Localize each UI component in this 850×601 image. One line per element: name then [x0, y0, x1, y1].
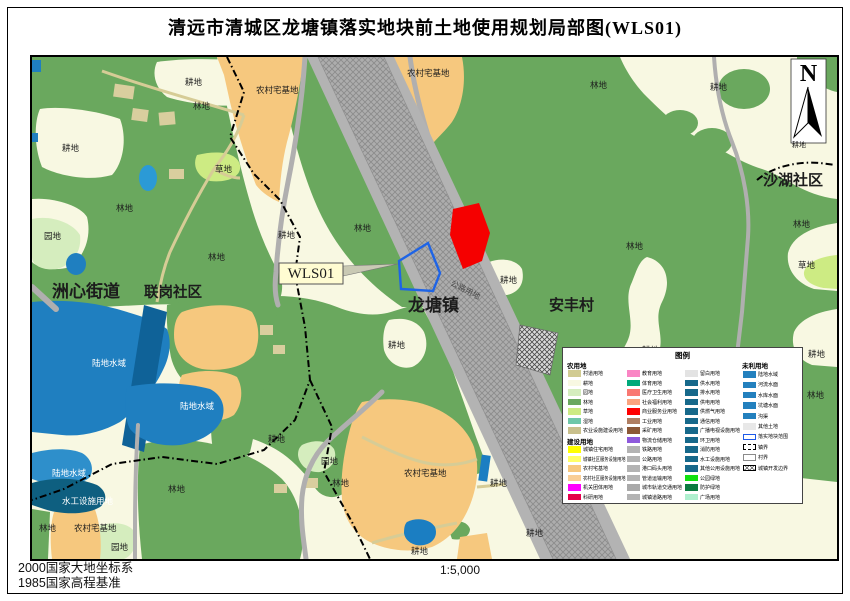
legend-item-label: 采矿用地: [642, 427, 662, 434]
north-arrow: N: [791, 59, 826, 143]
legend-item-label: 环卫用地: [700, 437, 720, 444]
legend-swatch: [743, 454, 756, 461]
legend-item-label: 城镇道路用地: [642, 494, 672, 501]
legend-swatch: [627, 427, 640, 434]
legend-item-label: 村道用地: [583, 370, 603, 377]
legend-section-header: 未利用地: [742, 360, 768, 370]
legend-item: 城镇开发边界: [743, 464, 788, 472]
legend-item: 公园绿地: [685, 474, 720, 482]
legend-swatch: [685, 418, 698, 425]
legend-swatch: [627, 446, 640, 453]
map-label: 农村宅基地: [256, 85, 299, 95]
legend-swatch: [568, 370, 581, 377]
map-label: 林地: [193, 101, 211, 111]
legend-item-label: 商业服务业用地: [642, 408, 677, 415]
legend-swatch: [743, 413, 756, 420]
legend-item-label: 镇界: [758, 444, 768, 451]
map-label: 林地: [332, 478, 350, 488]
legend-item: 农村社区服务设施用地: [568, 474, 633, 482]
map-label: 农村宅基地: [74, 523, 117, 533]
legend-item: 交通场站用地: [627, 503, 672, 505]
legend-swatch: [743, 371, 756, 378]
legend-item: 村界: [743, 454, 768, 462]
legend-item-label: 防护绿地: [700, 484, 720, 491]
legend-swatch: [568, 427, 581, 434]
legend-swatch: [568, 475, 581, 482]
legend-item: 村道用地: [568, 370, 603, 378]
legend-item-label: 通信用地: [700, 418, 720, 425]
legend-swatch: [685, 475, 698, 482]
legend-item-label: 农村宅基地: [583, 465, 608, 472]
map-label: 林地: [626, 241, 644, 251]
legend-item-label: 公园绿地: [700, 475, 720, 482]
legend-item: 落实地块范围: [743, 433, 788, 441]
legend-item: 镇界: [743, 443, 768, 451]
legend-item: 广播电视设施用地: [685, 427, 740, 435]
legend-section-header: 建设用地: [567, 436, 593, 446]
legend-item: 农村宅基地: [568, 465, 608, 473]
map-label: 林地: [116, 203, 134, 213]
map-label: 园地: [321, 456, 339, 466]
legend-item-label: 落实地块范围: [758, 433, 788, 440]
legend-swatch: [685, 494, 698, 501]
legend-item-label: 城市轨道交通用地: [642, 484, 682, 491]
legend-item-label: 坑塘水面: [758, 402, 778, 409]
legend-swatch: [627, 370, 640, 377]
legend-item-label: 消防用地: [700, 446, 720, 453]
map-sheet: 清远市清城区龙塘镇落实地块前土地使用规划局部图(WLS01): [0, 0, 850, 601]
legend-item: 农业设施建设用地: [568, 427, 623, 435]
legend-swatch: [627, 408, 640, 415]
legend-item-label: 城镇开发边界: [758, 465, 788, 472]
legend-item: 商业服务业用地: [627, 408, 677, 416]
map-label: 耕地: [710, 82, 728, 92]
legend-item-label: 排水用地: [700, 389, 720, 396]
legend-swatch: [685, 399, 698, 406]
legend-item: 铁路用地: [627, 446, 662, 454]
legend-item-label: 耕地: [583, 380, 593, 387]
legend-swatch: [568, 465, 581, 472]
legend-swatch: [568, 389, 581, 396]
map-label: 安丰村: [549, 296, 594, 314]
legend-box: 图例 农用地村道用地耕地园地林地草地湿地农业设施建设用地建设用地城镇住宅用地城镇…: [562, 347, 803, 504]
legend-item: 教育用地: [627, 370, 662, 378]
map-label: 林地: [793, 219, 811, 229]
legend-swatch: [685, 446, 698, 453]
map-label: 耕地: [526, 528, 544, 538]
legend-item-label: 湿地: [583, 418, 593, 425]
map-label: 林地: [208, 252, 226, 262]
legend-item: 园地: [568, 389, 593, 397]
legend-item: 物流仓储用地: [627, 436, 672, 444]
legend-swatch: [568, 494, 581, 501]
map-label: 陆地水域: [180, 401, 215, 411]
legend-item-label: 其他土地: [758, 423, 778, 430]
legend-item-label: 城镇住宅用地: [583, 446, 613, 453]
map-label: 耕地: [278, 230, 296, 240]
legend-swatch: [627, 380, 640, 387]
map-label: 草地: [798, 260, 816, 270]
legend-item-label: 城镇社区服务设施用地: [583, 456, 626, 463]
map-label: 耕地: [411, 546, 429, 556]
legend-item-label: 文化用地: [583, 503, 603, 504]
legend-item: 消防用地: [685, 446, 720, 454]
legend-item: 城镇社区服务设施用地: [568, 455, 633, 463]
datum-text: 2000国家大地坐标系 1985国家高程基准: [18, 561, 133, 591]
legend-swatch: [685, 503, 698, 504]
legend-swatch: [568, 446, 581, 453]
legend-section-header: 农用地: [567, 360, 587, 370]
scale-label: 1:5,000: [400, 563, 520, 577]
map-label: 林地: [590, 80, 608, 90]
legend-item-label: 沟渠: [758, 413, 768, 420]
map-label: 耕地: [268, 434, 286, 444]
legend-swatch: [685, 465, 698, 472]
legend-swatch: [568, 399, 581, 406]
map-label: 沙湖社区: [763, 171, 823, 189]
legend-item: 供电用地: [685, 398, 720, 406]
legend-item: 公路用地: [627, 455, 662, 463]
map-label: 耕地: [62, 143, 80, 153]
legend-item: 排水用地: [685, 389, 720, 397]
legend-item-label: 供电用地: [700, 399, 720, 406]
legend-item: 环卫用地: [685, 436, 720, 444]
map-label: 洲心街道: [52, 281, 120, 301]
legend-item: 广场用地: [685, 493, 720, 501]
legend-item: 留白用地: [685, 370, 720, 378]
legend-item: 社会福利用地: [627, 398, 672, 406]
legend-item-label: 公路用地: [642, 456, 662, 463]
legend-item-label: 铁路用地: [642, 446, 662, 453]
map-label: 园地: [44, 231, 62, 241]
legend-item: 机关团体用地: [568, 484, 613, 492]
legend-item-label: 交通场站用地: [642, 503, 672, 504]
legend-item-label: 供水用地: [700, 380, 720, 387]
legend-item-label: 教育用地: [642, 370, 662, 377]
legend-swatch: [685, 437, 698, 444]
map-label: 农村宅基地: [404, 468, 447, 478]
legend-item: 湿地: [568, 417, 593, 425]
legend-item-label: 水库水面: [758, 392, 778, 399]
legend-item-label: 管道运输用地: [642, 475, 672, 482]
legend-item-label: 供燃气用地: [700, 408, 725, 415]
legend-item: 供燃气用地: [685, 408, 725, 416]
legend-item-label: 社会福利用地: [642, 399, 672, 406]
legend-swatch: [743, 423, 756, 430]
datum-line2: 1985国家高程基准: [18, 576, 133, 591]
legend-item-label: 草地: [583, 408, 593, 415]
legend-item-label: 留白用地: [700, 370, 720, 377]
legend-swatch: [627, 484, 640, 491]
legend-item: 其他公用设施用地: [685, 465, 740, 473]
map-label: 耕地: [490, 478, 508, 488]
legend-swatch: [685, 370, 698, 377]
legend-item-label: 农业设施建设用地: [583, 427, 623, 434]
legend-item: 防护绿地: [685, 484, 720, 492]
legend-item-label: 广播电视设施用地: [700, 427, 740, 434]
legend-item: 沟渠: [743, 412, 768, 420]
legend-item-label: 其他公用设施用地: [700, 465, 740, 472]
legend-swatch: [627, 503, 640, 504]
legend-swatch: [685, 408, 698, 415]
legend-item: 供水用地: [685, 379, 720, 387]
legend-swatch: [743, 382, 756, 389]
legend-swatch: [627, 494, 640, 501]
datum-line1: 2000国家大地坐标系: [18, 561, 133, 576]
legend-item: 城镇道路用地: [627, 493, 672, 501]
page-title: 清远市清城区龙塘镇落实地块前土地使用规划局部图(WLS01): [0, 14, 850, 40]
map-label: 耕地: [500, 275, 518, 285]
legend-swatch: [627, 465, 640, 472]
legend-item: 特殊用地: [685, 503, 720, 505]
legend-item: 城市轨道交通用地: [627, 484, 682, 492]
legend-swatch: [627, 475, 640, 482]
legend-swatch: [743, 392, 756, 399]
legend-swatch: [568, 418, 581, 425]
legend-item-label: 物流仓储用地: [642, 437, 672, 444]
legend-item: 其他土地: [743, 422, 778, 430]
legend-item-label: 水工设施用地: [700, 456, 730, 463]
legend-swatch: [568, 380, 581, 387]
map-label: 耕地: [185, 77, 203, 87]
map-label: 林地: [168, 484, 186, 494]
legend-swatch: [627, 399, 640, 406]
legend-item: 采矿用地: [627, 427, 662, 435]
legend-swatch: [568, 456, 581, 463]
legend-swatch: [627, 418, 640, 425]
legend-item: 河流水面: [743, 381, 778, 389]
map-label: 耕地: [808, 349, 826, 359]
map-label: 林地: [39, 523, 57, 533]
map-label: 农村宅基地: [407, 68, 450, 78]
legend-item-label: 农村社区服务设施用地: [583, 475, 626, 482]
legend-swatch: [627, 456, 640, 463]
legend-item-label: 工业用地: [642, 418, 662, 425]
legend-item: 水库水面: [743, 391, 778, 399]
legend-item-label: 陆地水域: [758, 371, 778, 378]
legend-swatch: [568, 484, 581, 491]
legend-item: 医疗卫生用地: [627, 389, 672, 397]
legend-item: 坑塘水面: [743, 402, 778, 410]
map-label: 陆地水域: [52, 468, 87, 478]
legend-item-label: 园地: [583, 389, 593, 396]
legend-swatch: [685, 484, 698, 491]
legend-swatch: [743, 465, 756, 472]
legend-swatch: [627, 437, 640, 444]
legend-item: 林地: [568, 398, 593, 406]
legend-item-label: 村界: [758, 454, 768, 461]
legend-item: 工业用地: [627, 417, 662, 425]
legend-swatch: [627, 389, 640, 396]
legend-item-label: 科研用地: [583, 494, 603, 501]
legend-swatch: [743, 434, 756, 441]
legend-item: 城镇住宅用地: [568, 446, 613, 454]
legend-swatch: [685, 456, 698, 463]
legend-item: 体育用地: [627, 379, 662, 387]
map-label: 陆地水域: [92, 358, 127, 368]
map-label: 联岗社区: [144, 283, 202, 301]
legend-item-label: 港口码头用地: [642, 465, 672, 472]
legend-swatch: [743, 444, 756, 451]
map-label: 耕地: [792, 140, 806, 149]
map-label: 园地: [111, 542, 129, 552]
legend-item: 管道运输用地: [627, 474, 672, 482]
legend-item: 科研用地: [568, 493, 603, 501]
map-label: 龙塘镇: [407, 295, 459, 315]
legend-item: 水工设施用地: [685, 455, 730, 463]
legend-item-label: 广场用地: [700, 494, 720, 501]
legend-item-label: 机关团体用地: [583, 484, 613, 491]
legend-swatch: [568, 408, 581, 415]
map-label: 水工设施用地: [62, 496, 114, 506]
legend-swatch: [685, 389, 698, 396]
legend-swatch: [685, 380, 698, 387]
legend-item: 耕地: [568, 379, 593, 387]
legend-item-label: 医疗卫生用地: [642, 389, 672, 396]
map-label: 草地: [215, 164, 233, 174]
legend-item-label: 体育用地: [642, 380, 662, 387]
legend-item-label: 河流水面: [758, 381, 778, 388]
legend-item-label: 林地: [583, 399, 593, 406]
legend-item: 陆地水域: [743, 370, 778, 378]
map-label: WLS01: [288, 266, 335, 282]
legend-item-label: 特殊用地: [700, 503, 720, 504]
map-label: 林地: [354, 223, 372, 233]
legend-item: 港口码头用地: [627, 465, 672, 473]
map-label: 耕地: [388, 340, 406, 350]
map-label: 林地: [807, 390, 825, 400]
legend-swatch: [568, 503, 581, 504]
legend-item: 草地: [568, 408, 593, 416]
legend-swatch: [743, 402, 756, 409]
legend-item: 文化用地: [568, 503, 603, 505]
north-label: N: [800, 61, 818, 87]
legend-item: 通信用地: [685, 417, 720, 425]
legend-swatch: [685, 427, 698, 434]
